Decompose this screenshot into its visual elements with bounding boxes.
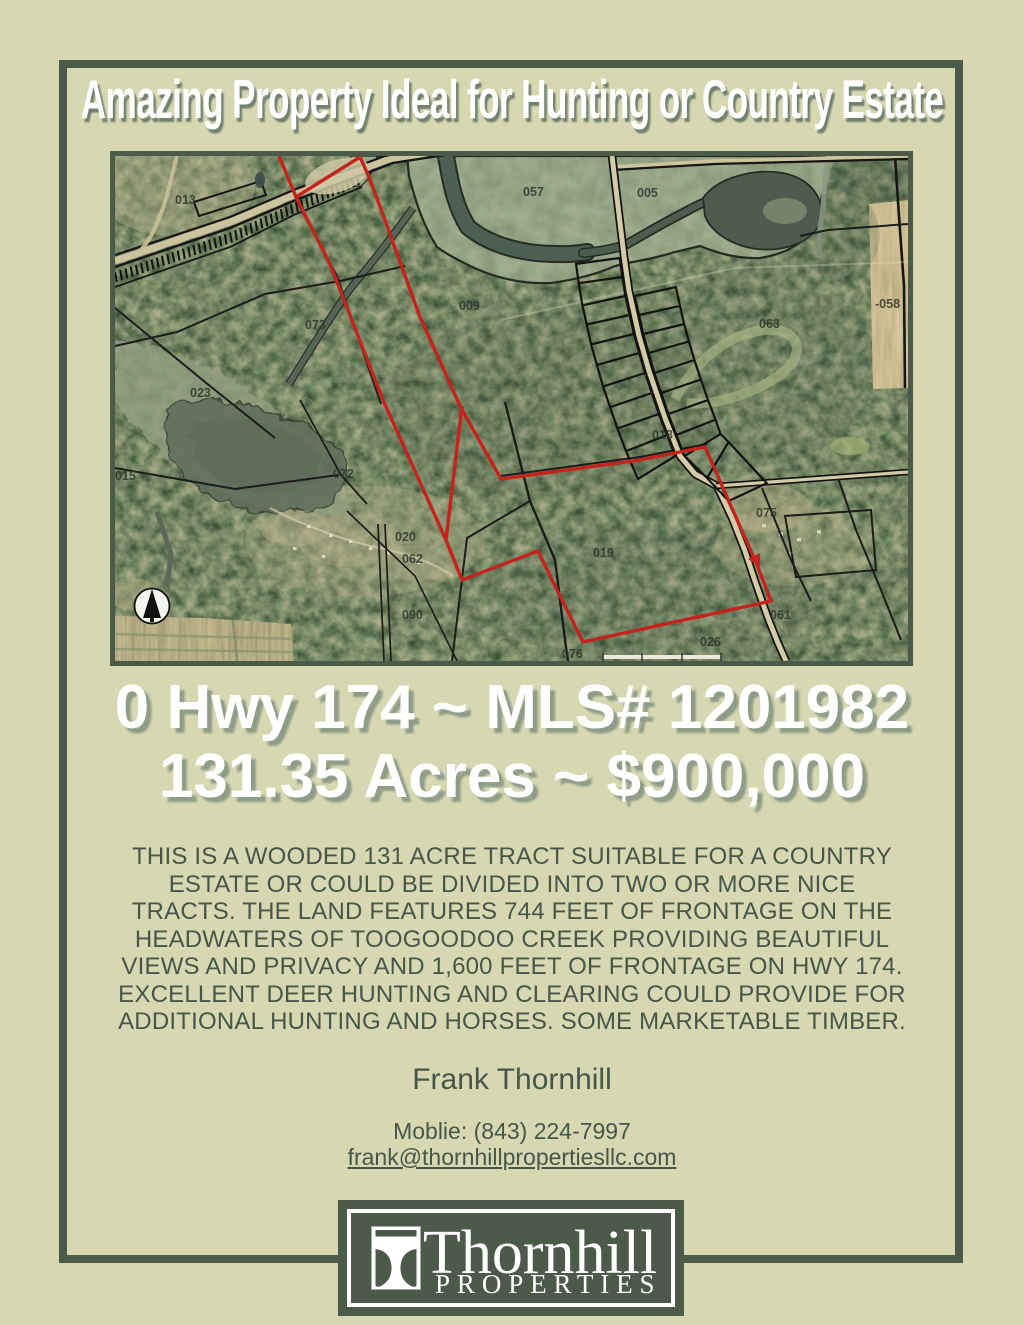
svg-text:075: 075 xyxy=(756,506,777,520)
svg-text:018: 018 xyxy=(652,428,673,442)
svg-text:090: 090 xyxy=(402,608,423,622)
svg-text:026: 026 xyxy=(700,635,721,649)
svg-text:005: 005 xyxy=(637,186,658,200)
svg-text:019: 019 xyxy=(593,546,614,560)
svg-text:073: 073 xyxy=(305,318,326,332)
svg-text:015: 015 xyxy=(115,469,136,483)
svg-text:023: 023 xyxy=(190,386,211,400)
svg-text:072: 072 xyxy=(333,467,354,481)
svg-text:062: 062 xyxy=(402,552,423,566)
svg-text:009: 009 xyxy=(459,299,480,313)
svg-text:061: 061 xyxy=(770,608,791,622)
svg-text:020: 020 xyxy=(395,530,416,544)
svg-text:076: 076 xyxy=(562,647,583,661)
svg-text:057: 057 xyxy=(523,185,544,199)
svg-text:013: 013 xyxy=(175,193,196,207)
svg-text:-058: -058 xyxy=(875,297,900,311)
svg-text:063: 063 xyxy=(759,317,780,331)
